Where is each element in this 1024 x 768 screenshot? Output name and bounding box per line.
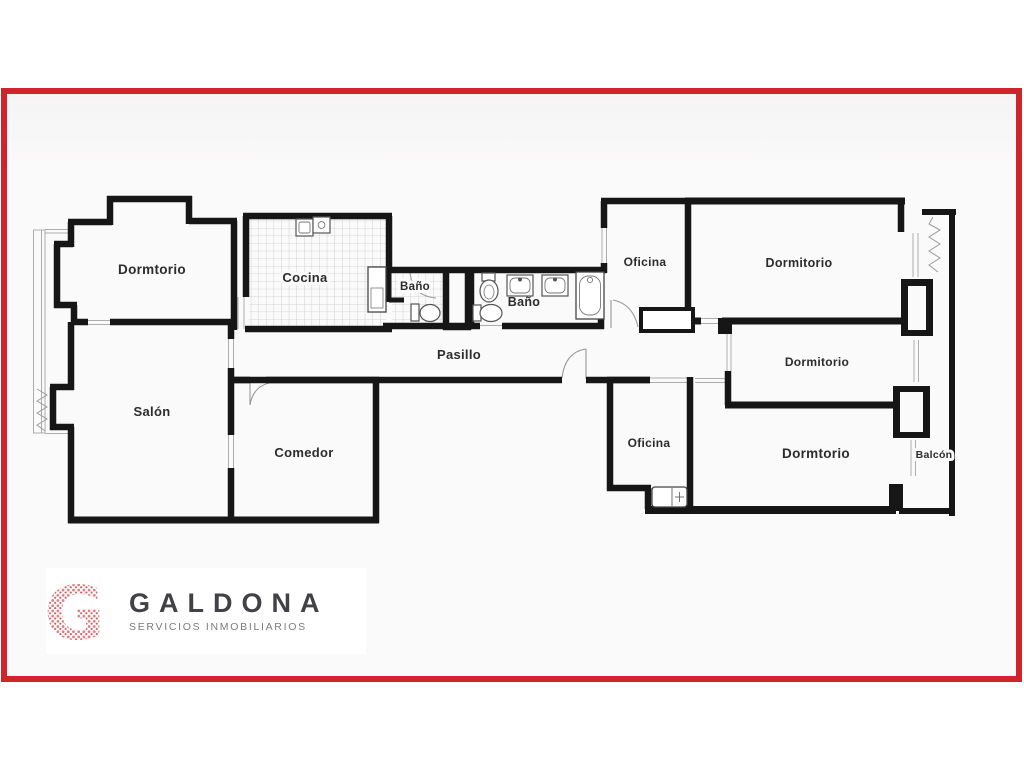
room-label-balcon: Balcón <box>916 449 953 461</box>
room-label-dormitorio-top-left: Dormtorio <box>118 262 186 277</box>
room-label-salon: Salón <box>134 404 171 419</box>
room-label-dormitorio-bottom-right: Dormtorio <box>782 446 850 461</box>
room-label-cocina: Cocina <box>282 270 328 285</box>
wall-blocks <box>641 279 933 511</box>
room-label-bano-large: Baño <box>508 295 541 309</box>
room-label-pasillo: Pasillo <box>437 347 481 362</box>
logo-tagline: SERVICIOS INMOBILIARIOS <box>129 621 329 633</box>
agency-logo: G GALDONA SERVICIOS INMOBILIARIOS <box>46 568 366 654</box>
room-label-oficina-top: Oficina <box>624 255 667 269</box>
logo-monogram: G <box>46 573 105 649</box>
room-label-dormitorio-top-right: Dormitorio <box>766 256 833 270</box>
room-label-comedor: Comedor <box>274 445 333 460</box>
logo-monogram-g: G <box>46 573 114 649</box>
room-label-bano-small: Baño <box>400 281 430 293</box>
logo-name: GALDONA <box>129 589 329 617</box>
logo-text-block: GALDONA SERVICIOS INMOBILIARIOS <box>129 589 329 632</box>
room-label-dormitorio-mid-right: Dormitorio <box>785 355 849 369</box>
room-label-oficina-bottom: Oficina <box>628 436 671 450</box>
radiator <box>641 309 693 331</box>
